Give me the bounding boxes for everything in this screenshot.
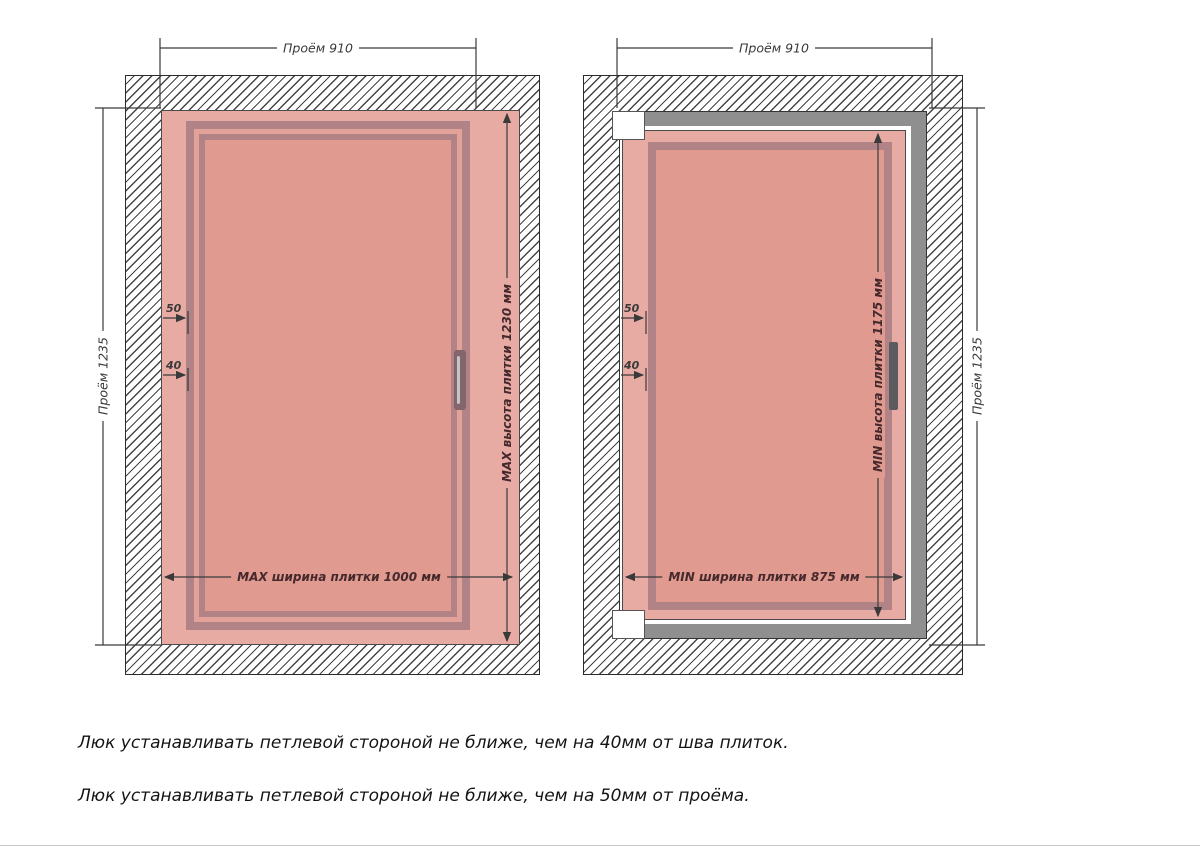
dim-offset-opening-max: 50 — [166, 302, 181, 315]
dim-tile-height-min: MIN высота плитки 1175 мм — [871, 272, 885, 478]
hinge-top-icon — [612, 111, 645, 140]
hinge-bottom-icon — [612, 610, 645, 639]
dim-tile-width-max: MAX ширина плитки 1000 мм — [231, 570, 447, 584]
dim-opening-height-max: Проём 1235 — [96, 331, 111, 421]
dim-tile-width-min: MIN ширина плитки 875 мм — [662, 570, 865, 584]
dim-offset-seam-max: 40 — [166, 359, 181, 372]
bottom-divider — [0, 845, 1200, 846]
dim-opening-height-min: Проём 1235 — [970, 331, 985, 421]
door-handle-max — [454, 350, 466, 410]
dim-opening-width-max: Проём 910 — [277, 41, 359, 56]
dim-offset-seam-min: 40 — [624, 359, 639, 372]
note-hinge-opening: Люк устанавливать петлевой стороной не б… — [78, 786, 750, 806]
dim-offset-opening-min: 50 — [624, 302, 639, 315]
hatch-leaf-min — [648, 142, 892, 610]
dim-opening-width-min: Проём 910 — [733, 41, 815, 56]
note-hinge-seam: Люк устанавливать петлевой стороной не б… — [78, 733, 789, 753]
dim-tile-height-max: MAX высота плитки 1230 мм — [500, 278, 514, 488]
hatch-leaf-inner-max — [199, 134, 457, 617]
door-handle-min — [889, 342, 898, 410]
page: Проём 910 Проём 1235 MAX высота плитки 1… — [0, 0, 1200, 851]
